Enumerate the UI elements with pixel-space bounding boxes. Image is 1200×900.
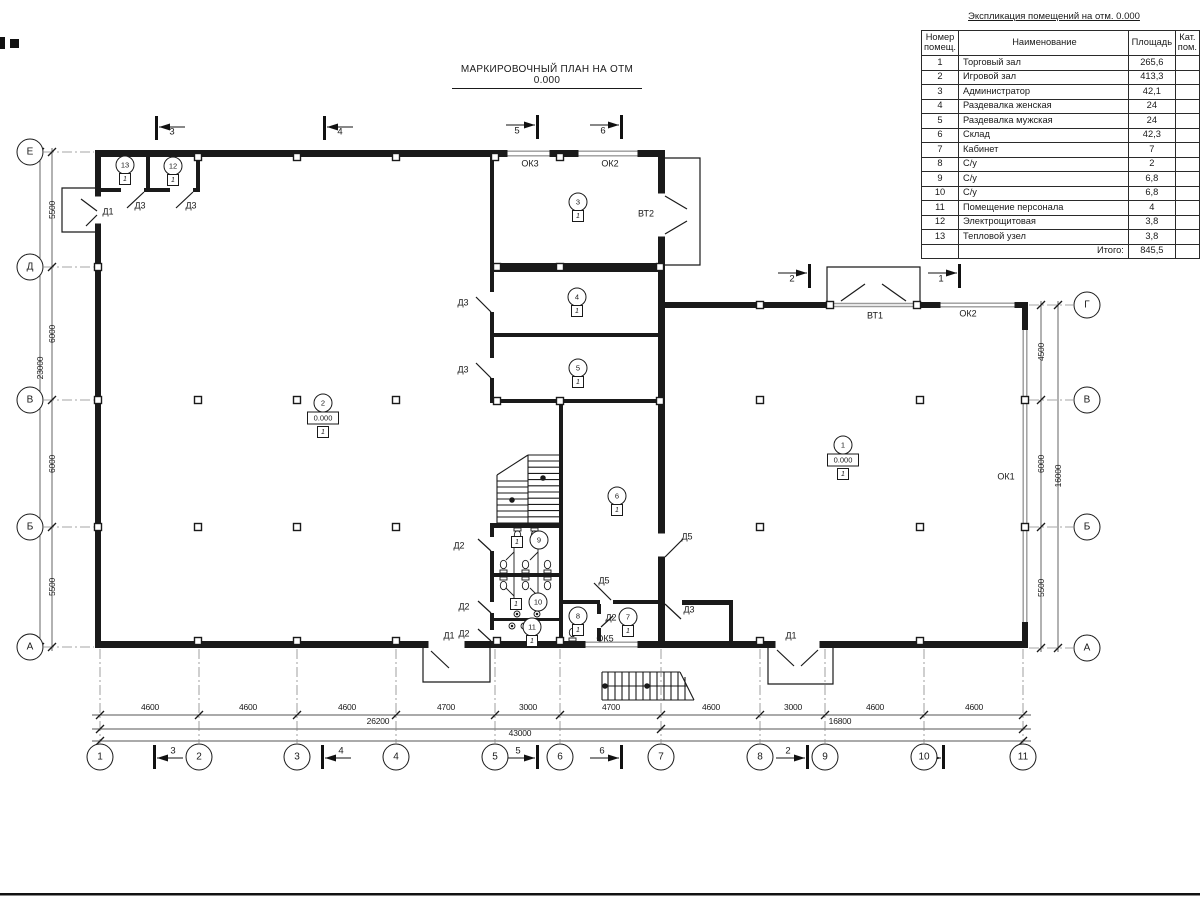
element-mark: Д5 [681,533,692,542]
section-label: 5 [514,126,519,136]
section-label: 5 [515,746,520,756]
axis-bubble: Г [1074,292,1101,319]
dimension-label: 23000 [36,357,45,380]
dimension-label: 3000 [784,703,802,712]
section-label: 3 [169,127,174,137]
dimension-label: 4600 [141,703,159,712]
element-mark: Д1 [102,208,113,217]
element-mark: ВТ2 [638,210,654,219]
dimension-ticks [36,148,1062,745]
axis-bubble: В [1074,387,1101,414]
room-number: 9 [530,531,549,550]
floor-type-mark: 1 [526,635,538,647]
axis-bubble: Б [17,514,44,541]
element-mark: Д3 [683,606,694,615]
floor-type-mark: 1 [572,624,584,636]
dimension-label: 16000 [1054,465,1063,488]
axis-lines [44,152,1073,743]
element-mark: Д3 [457,299,468,308]
axis-bubble: 2 [186,744,213,771]
room-number: 3 [569,193,588,212]
room-number: 2 [314,394,333,413]
section-label: 3 [170,746,175,756]
dimension-label: 4600 [965,703,983,712]
floor-type-mark: 1 [317,426,329,438]
floor-type-mark: 1 [572,376,584,388]
room-number: 10 [529,593,548,612]
floor-type-mark: 1 [611,504,623,516]
floor-plan-sheet: МАРКИРОВОЧНЫЙ ПЛАН НА ОТМ 0.000 Эксплика… [0,0,1200,900]
axis-bubble: 7 [648,744,675,771]
room-number: 13 [116,156,135,175]
dimension-label: 4500 [1037,343,1046,361]
element-mark: ВТ1 [867,312,883,321]
axis-bubble: 8 [747,744,774,771]
dimension-label: 4600 [702,703,720,712]
dimension-label: 4600 [338,703,356,712]
element-mark: Д5 [598,577,609,586]
dimension-label: 6000 [48,325,57,343]
room-number: 12 [164,157,183,176]
dimension-label: 4700 [437,703,455,712]
floor-type-mark: 1 [572,210,584,222]
element-mark: Д2 [458,603,469,612]
element-mark: ОК2 [601,160,618,169]
dimension-label: 5500 [1037,579,1046,597]
element-mark: ОК3 [521,160,538,169]
section-label: 4 [338,746,343,756]
elevation-mark: 0.000 [827,454,859,467]
room-number: 8 [569,607,588,626]
element-mark: Д2 [453,542,464,551]
section-label: 4 [337,127,342,137]
element-mark: ОК2 [959,310,976,319]
dimension-label: 4600 [866,703,884,712]
axis-bubble: Д [17,254,44,281]
axis-bubble: Е [17,139,44,166]
dimension-label: 5500 [48,201,57,219]
dimension-label: 43000 [509,729,532,738]
dimension-lines [40,148,1058,741]
element-mark: ОК5 [596,635,613,644]
axis-bubble: 10 [911,744,938,771]
axis-bubble: А [17,634,44,661]
axis-bubble: 9 [812,744,839,771]
element-mark: Д2 [605,614,616,623]
room-number: 5 [569,359,588,378]
room-number: 4 [568,288,587,307]
room-number: 11 [523,618,542,637]
floor-type-mark: 1 [511,536,523,548]
dimension-label: 6000 [1037,455,1046,473]
section-label: 2 [789,274,794,284]
element-mark: Д2 [458,630,469,639]
floor-type-mark: 1 [167,174,179,186]
axis-bubble: 11 [1010,744,1037,771]
axis-bubble: 6 [547,744,574,771]
section-label: 6 [600,126,605,136]
axis-bubble: Б [1074,514,1101,541]
element-mark: Д3 [457,366,468,375]
axis-bubble: 1 [87,744,114,771]
room-number: 1 [834,436,853,455]
element-mark: Д3 [134,202,145,211]
dimension-label: 26200 [367,717,390,726]
dimension-label: 4600 [239,703,257,712]
floor-type-mark: 1 [622,625,634,637]
section-label: 6 [599,746,604,756]
dimension-label: 3000 [519,703,537,712]
dimension-label: 4700 [602,703,620,712]
dimension-label: 5500 [48,578,57,596]
element-mark: Д1 [785,632,796,641]
room-number: 7 [619,608,638,627]
section-label: 2 [785,746,790,756]
section-label: 1 [938,274,943,284]
axis-bubble: В [17,387,44,414]
internal-stair [497,455,559,523]
dimension-label: 6000 [48,455,57,473]
floor-type-mark: 1 [571,305,583,317]
axis-bubble: 4 [383,744,410,771]
floor-type-mark: 1 [510,598,522,610]
external-stair [602,672,694,700]
element-mark: ОК1 [997,473,1014,482]
element-mark: Д1 [443,632,454,641]
element-mark: Д3 [185,202,196,211]
dimension-label: 16800 [829,717,852,726]
axis-bubble: 5 [482,744,509,771]
floor-type-mark: 1 [837,468,849,480]
elevation-mark: 0.000 [307,412,339,425]
axis-bubble: 3 [284,744,311,771]
floor-type-mark: 1 [119,173,131,185]
room-number: 6 [608,487,627,506]
axis-bubble: А [1074,635,1101,662]
